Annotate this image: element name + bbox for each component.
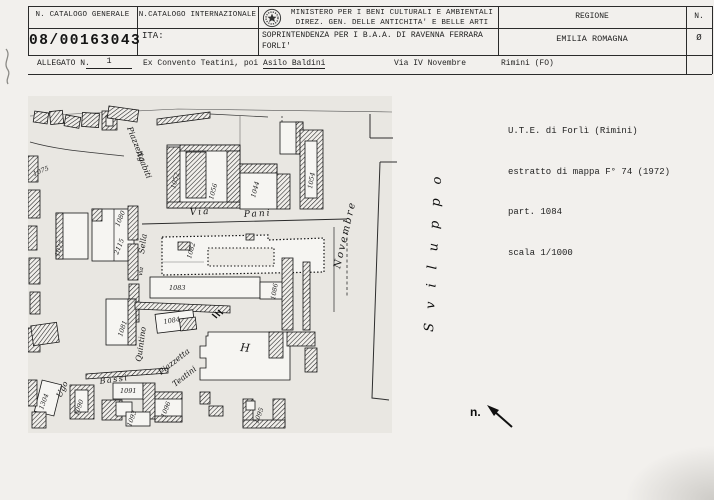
table-border	[28, 6, 712, 7]
table-border	[712, 6, 713, 74]
map-label: H	[239, 341, 251, 355]
soprintendenza: SOPRINTENDENZA PER I B.A.A. DI RAVENNA F…	[262, 31, 483, 52]
object-title: Ex Convento Teatini, poi Asilo Baldini	[143, 59, 325, 68]
allegato-value: 1	[86, 56, 132, 69]
regione-label: REGIONE	[498, 12, 686, 21]
map-label: 1091	[120, 387, 137, 395]
scanned-catalog-form: { "header": { "row1": { "col1": "N. CATA…	[0, 0, 714, 500]
note-line2: estratto di mappa F° 74 (1972)	[508, 166, 670, 180]
scan-corner-shadow	[624, 445, 714, 500]
map-label: Pani	[243, 209, 272, 220]
north-arrow: n.	[470, 405, 512, 427]
sviluppo-annotation: Sviluppo	[422, 162, 446, 332]
map-label: via	[137, 266, 145, 276]
note-line4: scala 1/1000	[508, 247, 670, 261]
map-reference-note: U.T.E. di Forlì (Rimini) estratto di map…	[508, 98, 670, 274]
note-line3: part. 1084	[508, 206, 670, 220]
allegato-label: ALLEGATO N.	[37, 59, 90, 68]
city-value: Rimini (FO)	[501, 59, 554, 68]
note-line1: U.T.E. di Forlì (Rimini)	[508, 125, 670, 139]
object-title-underlined: Asilo Baldini	[263, 59, 325, 69]
ministry-title: MINISTERO PER I BENI CULTURALI E AMBIENT…	[288, 9, 496, 28]
north-label: n.	[470, 405, 481, 419]
catalog-number: 08/00163043	[29, 33, 135, 49]
margin-mark	[0, 45, 14, 87]
map-label: Via	[190, 207, 211, 218]
street-value: Via IV Novembre	[394, 59, 466, 68]
ita-label: ITA:	[142, 31, 164, 41]
soprintendenza-line1: SOPRINTENDENZA PER I B.A.A. DI RAVENNA F…	[262, 31, 483, 42]
regione-value: EMILIA ROMAGNA	[498, 34, 686, 44]
table-border	[28, 74, 712, 75]
catalogo-internazionale-label: N.CATALOGO INTERNAZIONALE	[137, 11, 258, 19]
catalogo-generale-label: N. CATALOGO GENERALE	[28, 11, 137, 19]
table-border	[258, 6, 259, 55]
ministry-line2: DIREZ. GEN. DELLE ANTICHITA' E BELLE ART…	[288, 19, 496, 29]
object-title-prefix: Ex Convento Teatini, poi	[143, 59, 263, 68]
state-emblem-icon	[261, 7, 283, 29]
cadastral-map: PiazzettaAgabitiViaPaniSellaviaQuintinoP…	[28, 94, 528, 442]
n-label: N.	[686, 12, 712, 21]
table-border	[28, 28, 712, 29]
ministry-line1: MINISTERO PER I BENI CULTURALI E AMBIENT…	[288, 9, 496, 19]
n-value: Ø	[686, 33, 712, 43]
soprintendenza-line2: FORLI'	[262, 42, 483, 53]
map-label: 1083	[169, 284, 186, 292]
